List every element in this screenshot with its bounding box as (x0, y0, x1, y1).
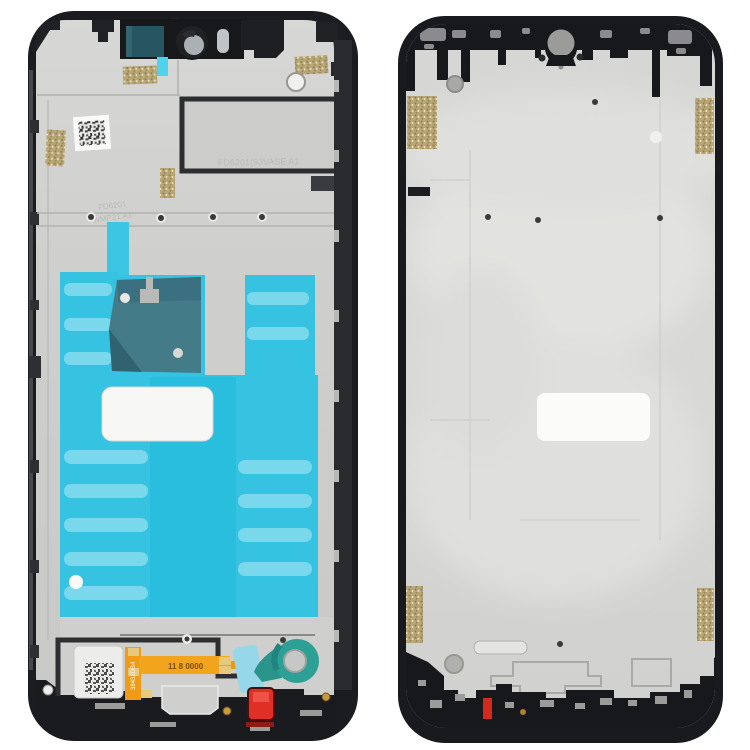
svg-text:38432DB4: 38432DB4 (131, 661, 137, 690)
svg-text:FD6201(93VASE A1: FD6201(93VASE A1 (218, 156, 300, 167)
svg-text:11 8 0000: 11 8 0000 (168, 662, 204, 671)
